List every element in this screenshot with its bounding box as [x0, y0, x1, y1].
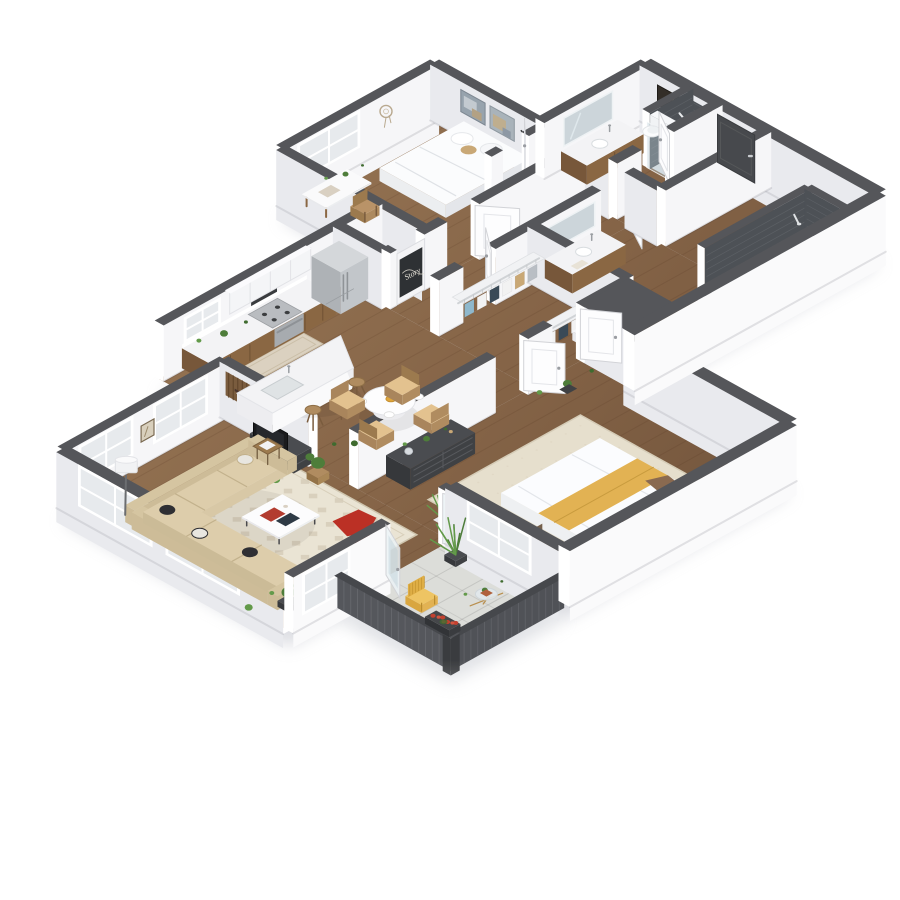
- master-door: [524, 341, 565, 394]
- floor-plan-canvas: Story: [0, 0, 900, 900]
- walkin-closet-door: [580, 309, 621, 363]
- floor-plan-3d-render: Story: [0, 0, 900, 900]
- bottom-fade: [0, 640, 900, 900]
